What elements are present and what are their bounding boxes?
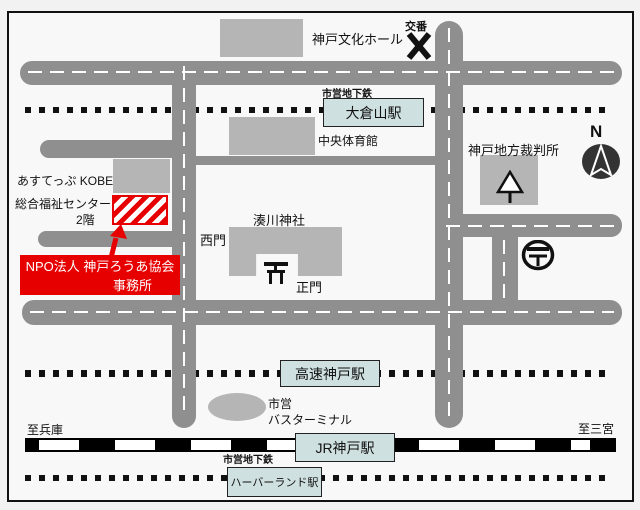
station-okurayama: 大倉山駅 [323, 98, 424, 127]
building-asutep [113, 159, 170, 193]
label-west-gate: 西門 [200, 230, 226, 249]
label-culture-hall: 神戸文化ホール [312, 29, 403, 48]
label-asutep: あすてっぷ KOBE [17, 172, 113, 189]
compass-n-label: N [590, 122, 602, 142]
label-fukushi-center: 総合福祉センター [15, 195, 111, 212]
road-short-vertical [492, 237, 518, 302]
label-to-sannomiya: 至三宮 [578, 420, 614, 437]
station-kosoku-kobe: 高速神戸駅 [280, 360, 380, 387]
torii-icon [263, 260, 289, 284]
centerline-right-vertical [448, 28, 450, 420]
centerline-left-vertical [183, 66, 185, 418]
compass-icon [581, 143, 621, 180]
label-court: 神戸地方裁判所 [468, 140, 559, 159]
destination-line2: 事務所 [20, 275, 180, 294]
bus-terminal-ellipse [208, 393, 266, 421]
label-gym: 中央体育館 [318, 132, 378, 149]
subway-dotted-line-top [25, 107, 613, 113]
building-culture-hall [220, 19, 303, 57]
court-tree-icon [494, 170, 526, 204]
kobe-access-map: 大倉山駅 高速神戸駅 JR神戸駅 ハーバーランド駅 NPO法人 神戸ろうあ協会 … [0, 0, 640, 510]
label-to-hyogo: 至兵庫 [27, 421, 63, 438]
label-floor2: 2階 [76, 211, 95, 228]
label-main-gate: 正門 [296, 277, 322, 296]
road-thin-middle [190, 156, 452, 165]
label-shrine: 湊川神社 [253, 210, 305, 229]
koban-x-icon [406, 32, 432, 60]
building-gym [229, 117, 315, 155]
station-jr-kobe: JR神戸駅 [295, 433, 395, 462]
destination-label-box: NPO法人 神戸ろうあ協会 事務所 [20, 255, 180, 295]
centerline-court [446, 225, 616, 227]
road-top-horizontal [20, 61, 622, 85]
centerline-short-vertical [503, 240, 505, 298]
label-shiei: 市営 [268, 395, 292, 412]
station-harborland: ハーバーランド駅 [227, 467, 322, 497]
label-subway-top: 市営地下鉄 [322, 85, 372, 100]
centerline-main [30, 311, 614, 313]
label-subway-bottom: 市営地下鉄 [223, 451, 273, 466]
station-okurayama-label: 大倉山駅 [346, 103, 402, 123]
destination-line1: NPO法人 神戸ろうあ協会 [20, 256, 180, 275]
destination-hatched-box [112, 195, 168, 225]
label-koban: 交番 [405, 18, 427, 34]
station-jr-kobe-label: JR神戸駅 [315, 438, 374, 458]
station-harborland-label: ハーバーランド駅 [231, 474, 319, 490]
label-bus-terminal: バスターミナル [268, 411, 352, 428]
road-stub-upper-left [40, 140, 180, 158]
station-kosoku-kobe-label: 高速神戸駅 [295, 364, 365, 384]
centerline-top [28, 71, 614, 73]
post-office-icon [521, 240, 555, 271]
